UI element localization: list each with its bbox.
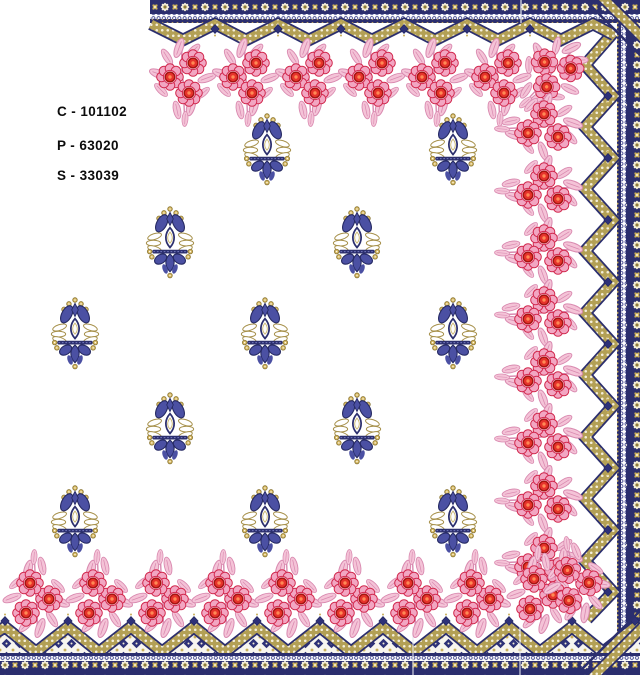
bottom-dot-band [0,656,640,661]
design-canvas [0,0,640,675]
design-code-c: C - 101102 [57,104,127,119]
bottom-navy-line [0,653,640,656]
top-rosette-band [150,0,640,14]
design-code-s: S - 33039 [57,168,119,183]
right-navy-band [617,0,621,675]
top-border [150,0,640,40]
right-rosette-band [626,0,640,675]
design-code-p: P - 63020 [57,138,119,153]
bottom-rosette-band [0,661,640,675]
embroidery-design-page: C - 101102 P - 63020 S - 33039 [0,0,640,675]
right-dot-band [621,0,626,675]
top-dot-band [150,14,640,19]
